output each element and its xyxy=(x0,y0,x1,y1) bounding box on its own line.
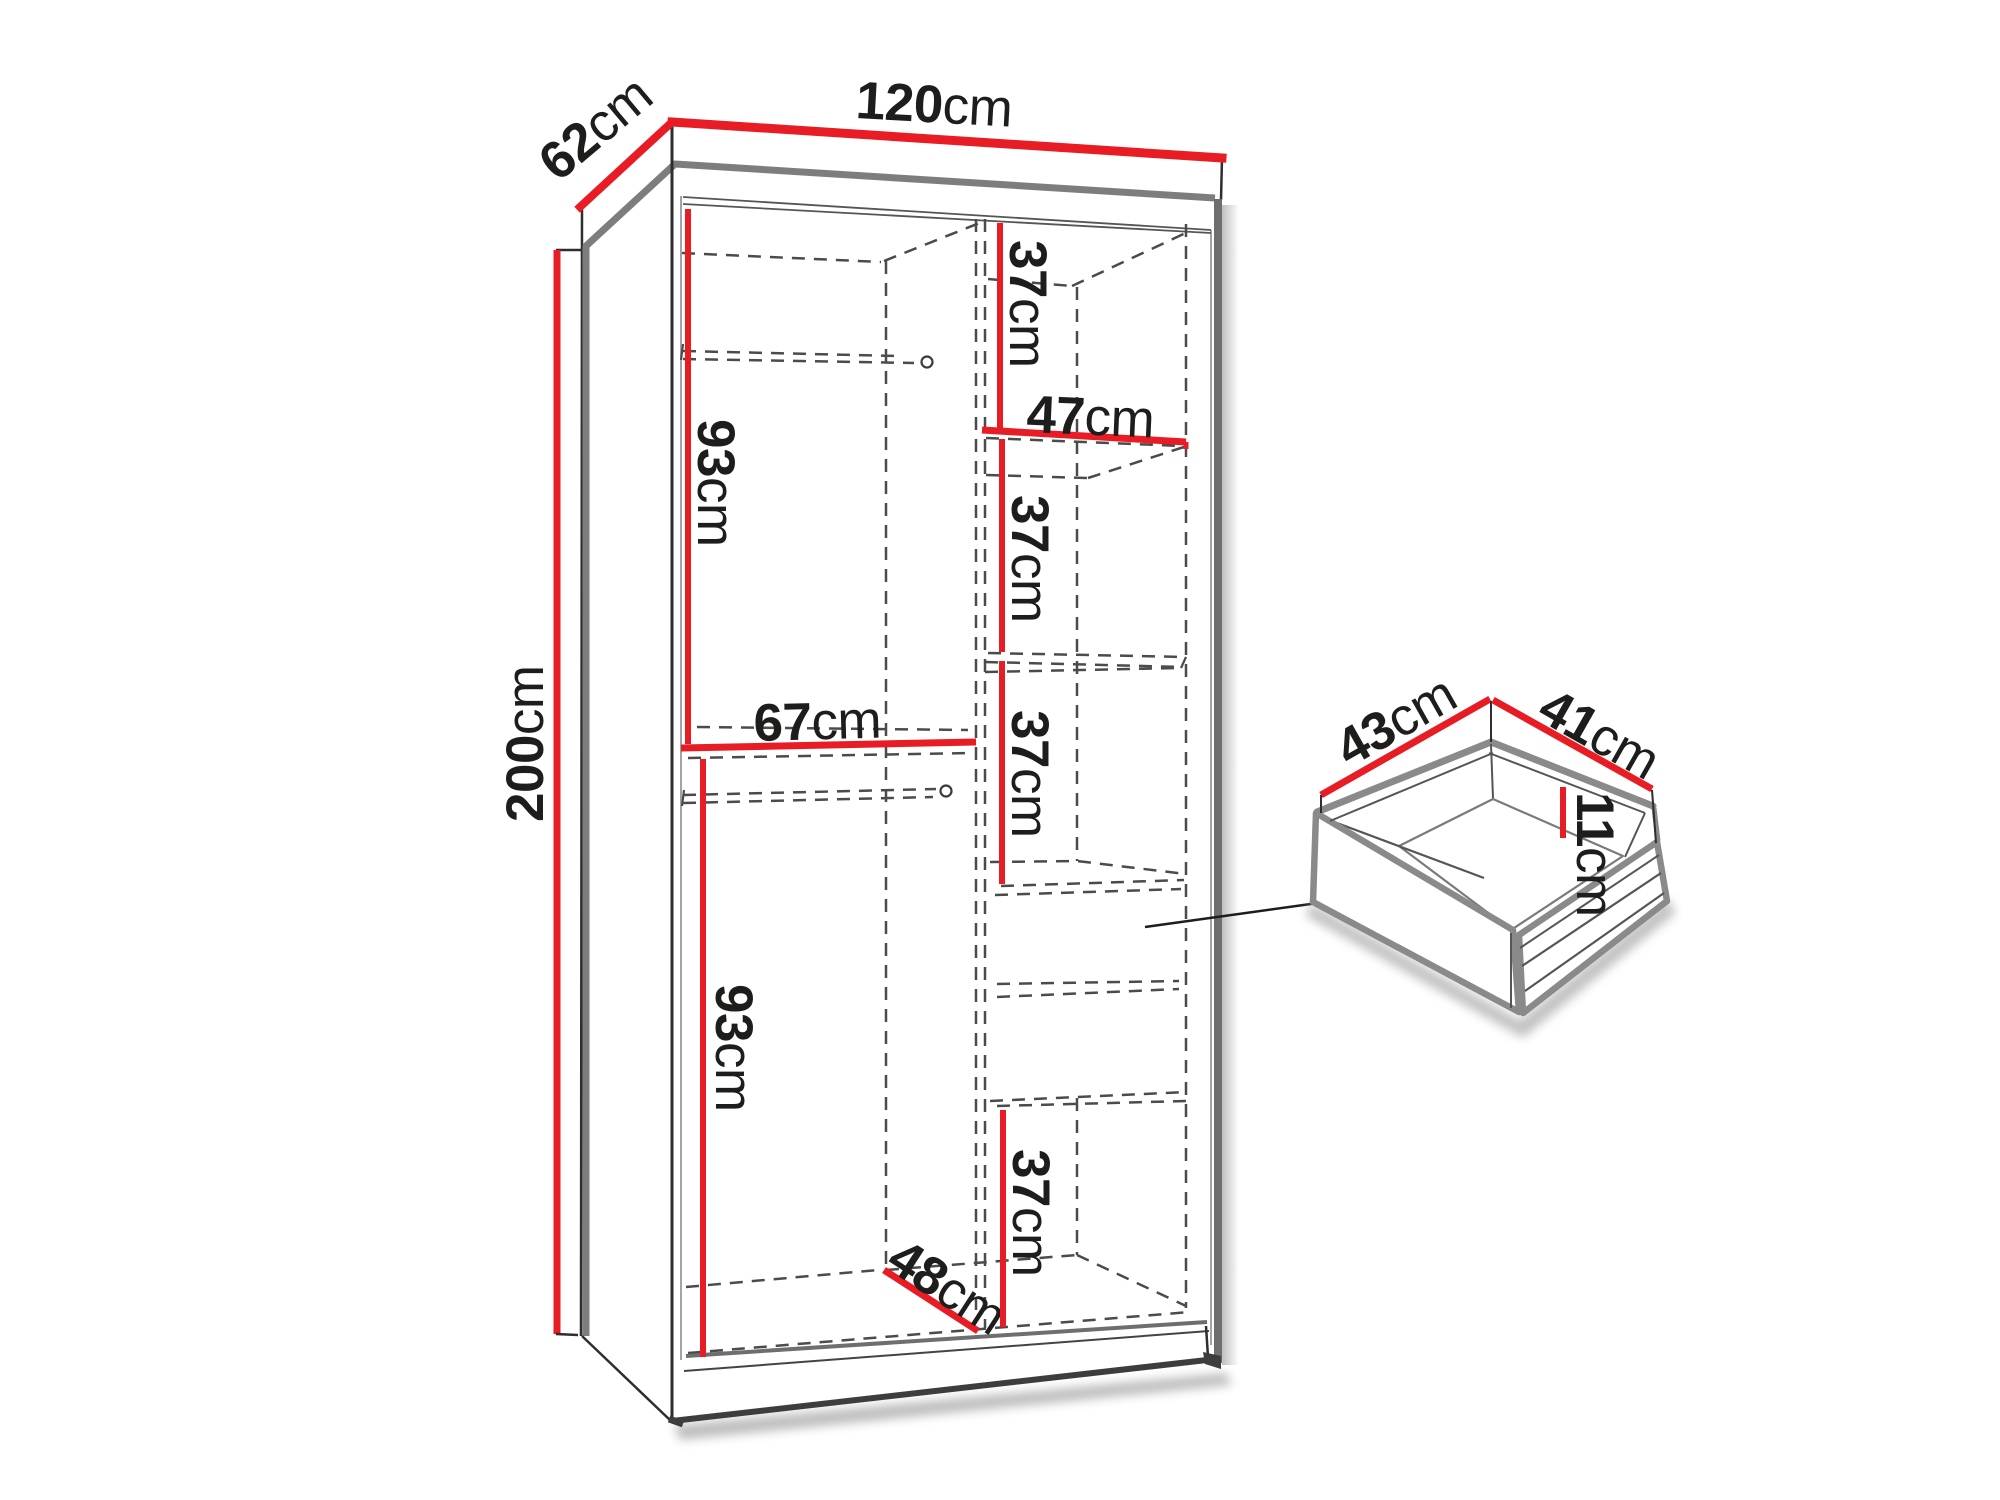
svg-text:200cm: 200cm xyxy=(496,665,555,822)
svg-text:37cm: 37cm xyxy=(998,240,1057,368)
svg-text:93cm: 93cm xyxy=(686,419,745,547)
svg-text:120cm: 120cm xyxy=(854,71,1014,139)
svg-text:11cm: 11cm xyxy=(1565,792,1624,917)
svg-text:67cm: 67cm xyxy=(753,691,882,753)
svg-text:37cm: 37cm xyxy=(1000,495,1059,623)
svg-text:47cm: 47cm xyxy=(1025,385,1155,450)
svg-text:37cm: 37cm xyxy=(1001,1149,1060,1277)
svg-text:37cm: 37cm xyxy=(1000,710,1059,838)
svg-text:93cm: 93cm xyxy=(704,984,763,1112)
